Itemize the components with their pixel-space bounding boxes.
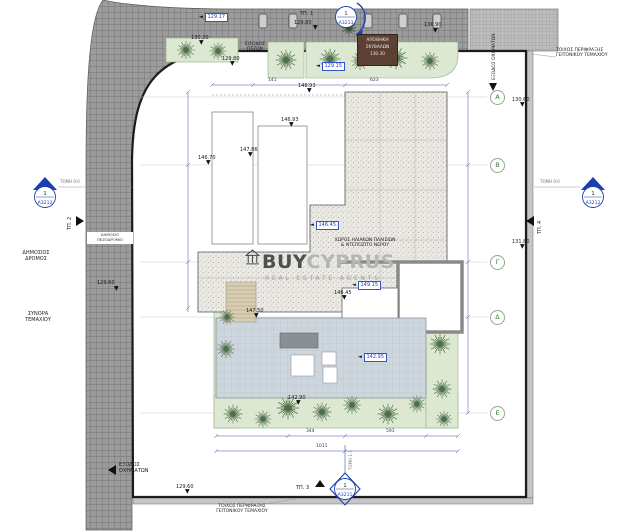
level-triangle-icon: ▼: [206, 160, 211, 166]
level-flag-icon: ◄: [310, 223, 314, 228]
level-triangle-icon: ▼: [114, 286, 119, 292]
boxed-level-label: 129.15: [322, 62, 345, 71]
dimension-label: 141: [268, 78, 277, 83]
grid-bubble: Α: [490, 90, 505, 105]
dimension-label: 1011: [316, 444, 327, 449]
level-triangle-icon: ▼: [185, 489, 190, 495]
level-triangle-icon: ▼: [520, 244, 525, 250]
level-triangle-icon: ▼: [433, 28, 438, 34]
level-flag-icon: ◄: [316, 64, 320, 69]
level-triangle-icon: ▼: [313, 25, 318, 31]
level-triangle-icon: ▼: [520, 102, 525, 108]
level-triangle-icon: ▼: [296, 400, 301, 406]
level-flag-icon: ◄: [358, 355, 362, 360]
grid-bubble: Δ: [490, 310, 505, 325]
annotation-layer: 130.20▼129.80▼129.80▼136.90▼130.60▼131.8…: [0, 0, 635, 532]
level-flag-icon: ◄: [352, 283, 356, 288]
level-flag-icon: ◄: [199, 15, 203, 20]
boxed-level-label: 146.45: [316, 221, 339, 230]
grid-bubble: Γ: [490, 255, 505, 270]
level-triangle-icon: ▼: [289, 122, 294, 128]
boxed-level-label: 129.17: [205, 13, 228, 22]
boxed-level-label: 142.95: [364, 353, 387, 362]
spot-level-label: 129.80: [294, 20, 312, 26]
level-triangle-icon: ▼: [199, 40, 204, 46]
level-triangle-icon: ▼: [230, 61, 235, 67]
level-triangle-icon: ▼: [248, 152, 253, 158]
grid-bubble: Ε: [490, 406, 505, 421]
level-triangle-icon: ▼: [254, 313, 259, 319]
spot-level-label: 129.60: [97, 280, 115, 286]
dimension-label: 623: [370, 78, 379, 83]
dimension-label: 593: [386, 429, 395, 434]
dimension-label: 344: [306, 429, 315, 434]
level-triangle-icon: ▼: [342, 295, 347, 301]
grid-bubble: Β: [490, 158, 505, 173]
level-triangle-icon: ▼: [307, 88, 312, 94]
site-plan: 1 A3212 1 A3212 1 A3213 1 A3211 ΕΙΣΟΔΟΣ …: [0, 0, 635, 532]
boxed-level-label: 149.15: [358, 281, 381, 290]
